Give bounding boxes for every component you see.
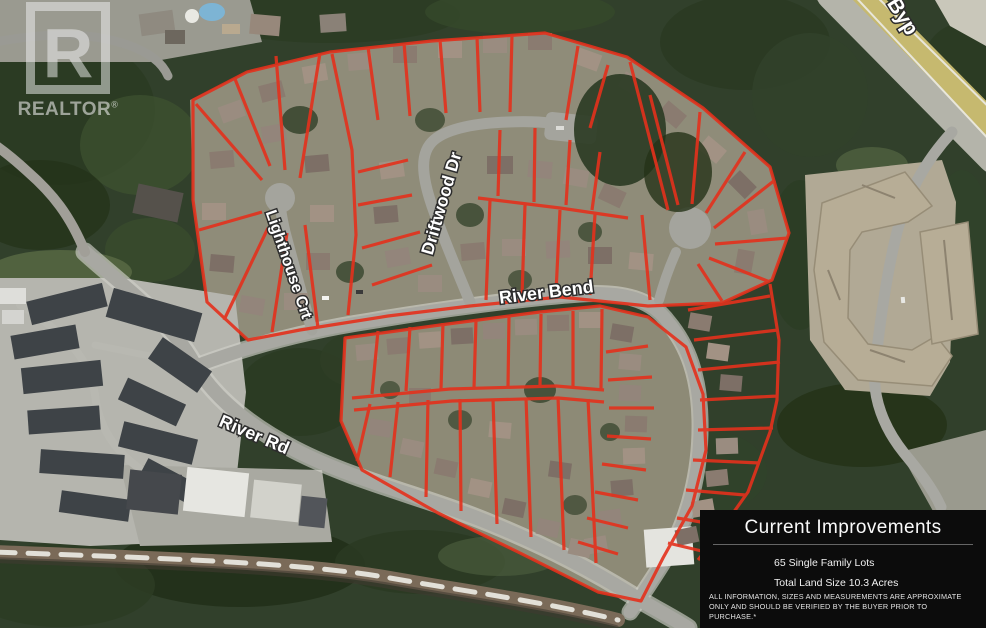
panel-disclaimer: ALL INFORMATION, SIZES AND MEASUREMENTS … — [709, 592, 976, 622]
panel-title: Current Improvements — [700, 517, 986, 539]
panel-stats: 65 Single Family Lots Total Land Size 10… — [700, 553, 986, 593]
stat-land-size: Total Land Size 10.3 Acres — [774, 573, 986, 593]
panel-divider — [713, 544, 973, 545]
listing-photo: Driftwood Dr Lighthouse Crt River Bend R… — [0, 0, 986, 628]
current-improvements-panel: Current Improvements 65 Single Family Lo… — [700, 510, 986, 628]
stat-lots: 65 Single Family Lots — [774, 553, 986, 573]
swimming-pool — [199, 3, 225, 21]
